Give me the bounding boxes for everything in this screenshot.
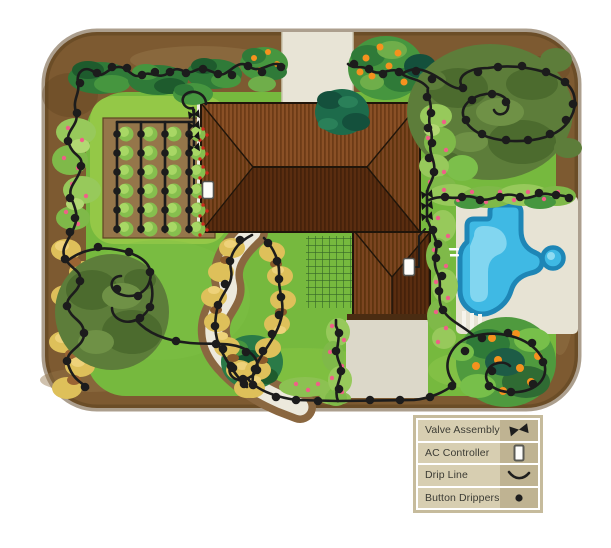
button-dripper — [108, 63, 117, 72]
button-dripper — [448, 382, 457, 391]
button-dripper — [546, 130, 555, 139]
button-dripper — [146, 268, 155, 277]
button-dripper — [474, 68, 483, 77]
button-dripper — [435, 287, 444, 296]
button-dripper — [123, 64, 132, 73]
button-dripper — [524, 136, 533, 145]
patio — [346, 320, 428, 398]
button-dripper — [277, 293, 286, 302]
button-dripper — [219, 345, 228, 354]
button-dripper — [211, 322, 220, 331]
legend-row-drip-line: Drip Line — [418, 465, 538, 486]
legend-row-button-drippers: Button Drippers — [418, 488, 538, 509]
button-dripper — [226, 257, 235, 266]
button-dripper — [337, 367, 346, 376]
button-dripper — [424, 124, 433, 133]
lounge-chair — [470, 313, 474, 330]
legend-rows: Valve Assembly AC Controller Drip Line — [416, 418, 540, 510]
button-dripper — [172, 337, 181, 346]
button-dripper — [335, 385, 344, 394]
button-dripper — [273, 257, 282, 266]
lounge-chair — [462, 311, 466, 328]
button-dripper — [365, 65, 374, 74]
button-dripper — [459, 84, 468, 93]
button-dripper — [221, 280, 230, 289]
button-dripper — [478, 130, 487, 139]
button-dripper — [462, 116, 471, 125]
button-dripper — [350, 60, 359, 69]
button-dripper — [251, 365, 260, 374]
button-dripper — [77, 162, 86, 171]
button-dripper — [229, 364, 238, 373]
button-dripper — [272, 393, 281, 402]
button-dripper — [81, 383, 90, 392]
button-dripper — [396, 396, 405, 405]
button-dripper — [73, 109, 82, 118]
button-dripper — [244, 62, 253, 71]
button-dripper — [64, 137, 73, 146]
legend-label: Button Drippers — [418, 488, 500, 509]
button-dripper — [485, 382, 494, 391]
button-dripper — [93, 69, 102, 78]
button-dripper — [535, 189, 544, 198]
button-dripper — [379, 70, 388, 79]
button-dripper — [562, 116, 571, 125]
button-dripper — [561, 78, 570, 87]
button-dripper — [425, 154, 434, 163]
button-dripper — [488, 367, 497, 376]
ac-controller — [203, 182, 214, 199]
legend-row-valve-assembly: Valve Assembly — [418, 420, 538, 441]
button-dripper — [423, 93, 432, 102]
button-dripper — [539, 358, 548, 367]
valve-assembly-icon — [506, 422, 532, 438]
button-dripper — [277, 63, 286, 72]
button-dripper — [502, 136, 511, 145]
button-dripper — [314, 397, 323, 406]
button-dripper — [125, 248, 134, 257]
button-dripper — [426, 393, 435, 402]
button-dripper — [228, 71, 237, 80]
button-dripper — [518, 62, 527, 71]
button-dripper — [182, 69, 191, 78]
legend-label: Drip Line — [418, 465, 500, 486]
button-dripper — [268, 330, 277, 339]
button-dripper — [258, 68, 267, 77]
legend-label: Valve Assembly — [418, 420, 500, 441]
button-dripper — [66, 228, 75, 237]
button-dripper — [439, 306, 448, 315]
button-dripper — [94, 243, 103, 252]
button-dripper — [264, 239, 273, 248]
button-dripper — [61, 255, 70, 264]
button-dripper — [151, 68, 160, 77]
button-dripper — [146, 303, 155, 312]
button-dripper — [476, 196, 485, 205]
button-dripper — [71, 214, 80, 223]
button-dripper — [66, 194, 75, 203]
legend: Valve Assembly AC Controller Drip Line — [413, 415, 543, 513]
button-dripper — [430, 168, 439, 177]
button-dripper-icon — [506, 490, 532, 506]
legend-label: AC Controller — [418, 443, 500, 464]
button-dripper — [507, 388, 516, 397]
button-dripper — [76, 79, 85, 88]
garden-trellis — [306, 236, 354, 308]
irrigation-plan-page: Valve Assembly AC Controller Drip Line — [0, 0, 611, 548]
button-dripper — [428, 139, 437, 148]
button-dripper — [488, 90, 497, 99]
button-dripper — [249, 381, 258, 390]
button-dripper — [504, 329, 513, 338]
button-dripper — [136, 314, 145, 323]
button-dripper — [565, 194, 574, 203]
button-dripper — [199, 65, 208, 74]
button-dripper — [275, 275, 284, 284]
button-dripper — [552, 191, 561, 200]
button-dripper — [242, 348, 251, 357]
button-dripper — [332, 347, 341, 356]
button-dripper — [63, 302, 72, 311]
drip-line-icon — [506, 467, 532, 483]
button-dripper — [134, 292, 143, 301]
button-dripper — [395, 68, 404, 77]
button-dripper — [236, 236, 245, 245]
button-dripper — [429, 226, 438, 235]
button-dripper — [516, 193, 525, 202]
button-dripper — [76, 277, 85, 286]
button-dripper — [528, 339, 537, 348]
button-dripper — [542, 68, 551, 77]
legend-row-ac-controller: AC Controller — [418, 443, 538, 464]
button-dripper — [441, 193, 450, 202]
button-dripper — [275, 311, 284, 320]
button-dripper — [438, 272, 447, 281]
house-wing-roof — [347, 232, 435, 320]
button-dripper — [432, 254, 441, 263]
button-dripper — [412, 67, 421, 76]
button-dripper — [259, 347, 268, 356]
button-dripper — [478, 334, 487, 343]
button-dripper — [458, 193, 467, 202]
button-dripper — [468, 96, 477, 105]
button-dripper — [529, 380, 538, 389]
button-dripper — [496, 193, 505, 202]
button-dripper — [240, 380, 249, 389]
button-dripper — [428, 75, 437, 84]
button-dripper — [569, 100, 578, 109]
button-dripper — [63, 357, 72, 366]
button-dripper — [366, 396, 375, 405]
button-dripper — [80, 329, 89, 338]
button-dripper — [335, 329, 344, 338]
button-dripper — [214, 70, 223, 79]
ac-controller-icon — [506, 444, 532, 462]
button-dripper — [138, 71, 147, 80]
button-dripper — [461, 347, 470, 356]
button-dripper — [212, 340, 221, 349]
ac-controller — [404, 259, 415, 276]
button-dripper — [427, 109, 436, 118]
button-dripper — [214, 301, 223, 310]
button-dripper — [434, 240, 443, 249]
button-dripper — [166, 68, 175, 77]
button-dripper — [113, 285, 122, 294]
button-dripper — [292, 396, 301, 405]
button-dripper — [494, 63, 503, 72]
button-dripper — [502, 98, 511, 107]
